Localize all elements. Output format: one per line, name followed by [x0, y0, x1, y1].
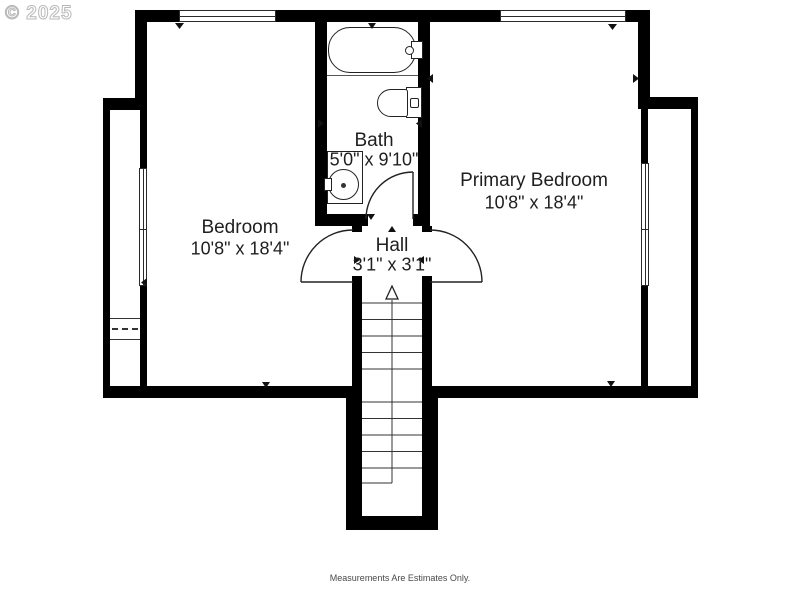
bedroom-door-arc	[301, 230, 353, 282]
marker-bath-right-outer	[427, 74, 433, 83]
bath-door-arc	[366, 172, 413, 219]
marker-bath-top	[368, 23, 376, 29]
marker-bath-door	[367, 214, 375, 220]
marker-bath-left	[318, 119, 324, 128]
marker-bottom-right	[607, 381, 615, 387]
primary-bedroom-label: Primary Bedroom	[460, 170, 608, 192]
marker-bath-right	[416, 119, 422, 128]
primary-bedroom-door-arc	[430, 230, 482, 282]
floor-plan: © 2025	[0, 0, 800, 600]
bath-dimensions: 5'0" x 9'10"	[330, 150, 419, 171]
marker-left-window	[141, 278, 147, 287]
bedroom-label: Bedroom	[201, 217, 278, 239]
disclaimer-text: Measurements Are Estimates Only.	[0, 573, 800, 583]
doors-stairs-overlay	[0, 0, 800, 600]
marker-top-left-window	[175, 23, 184, 29]
staircase-up-arrow	[386, 286, 398, 299]
marker-bottom-left	[262, 382, 270, 388]
staircase	[362, 300, 422, 483]
hall-dimensions: 3'1" x 3'1"	[353, 255, 432, 276]
marker-hall-top	[388, 226, 396, 232]
bedroom-dimensions: 10'8" x 18'4"	[191, 239, 290, 260]
marker-top-right-window	[608, 24, 617, 30]
primary-bedroom-dimensions: 10'8" x 18'4"	[485, 193, 584, 214]
marker-upper-right-wall	[633, 74, 639, 83]
